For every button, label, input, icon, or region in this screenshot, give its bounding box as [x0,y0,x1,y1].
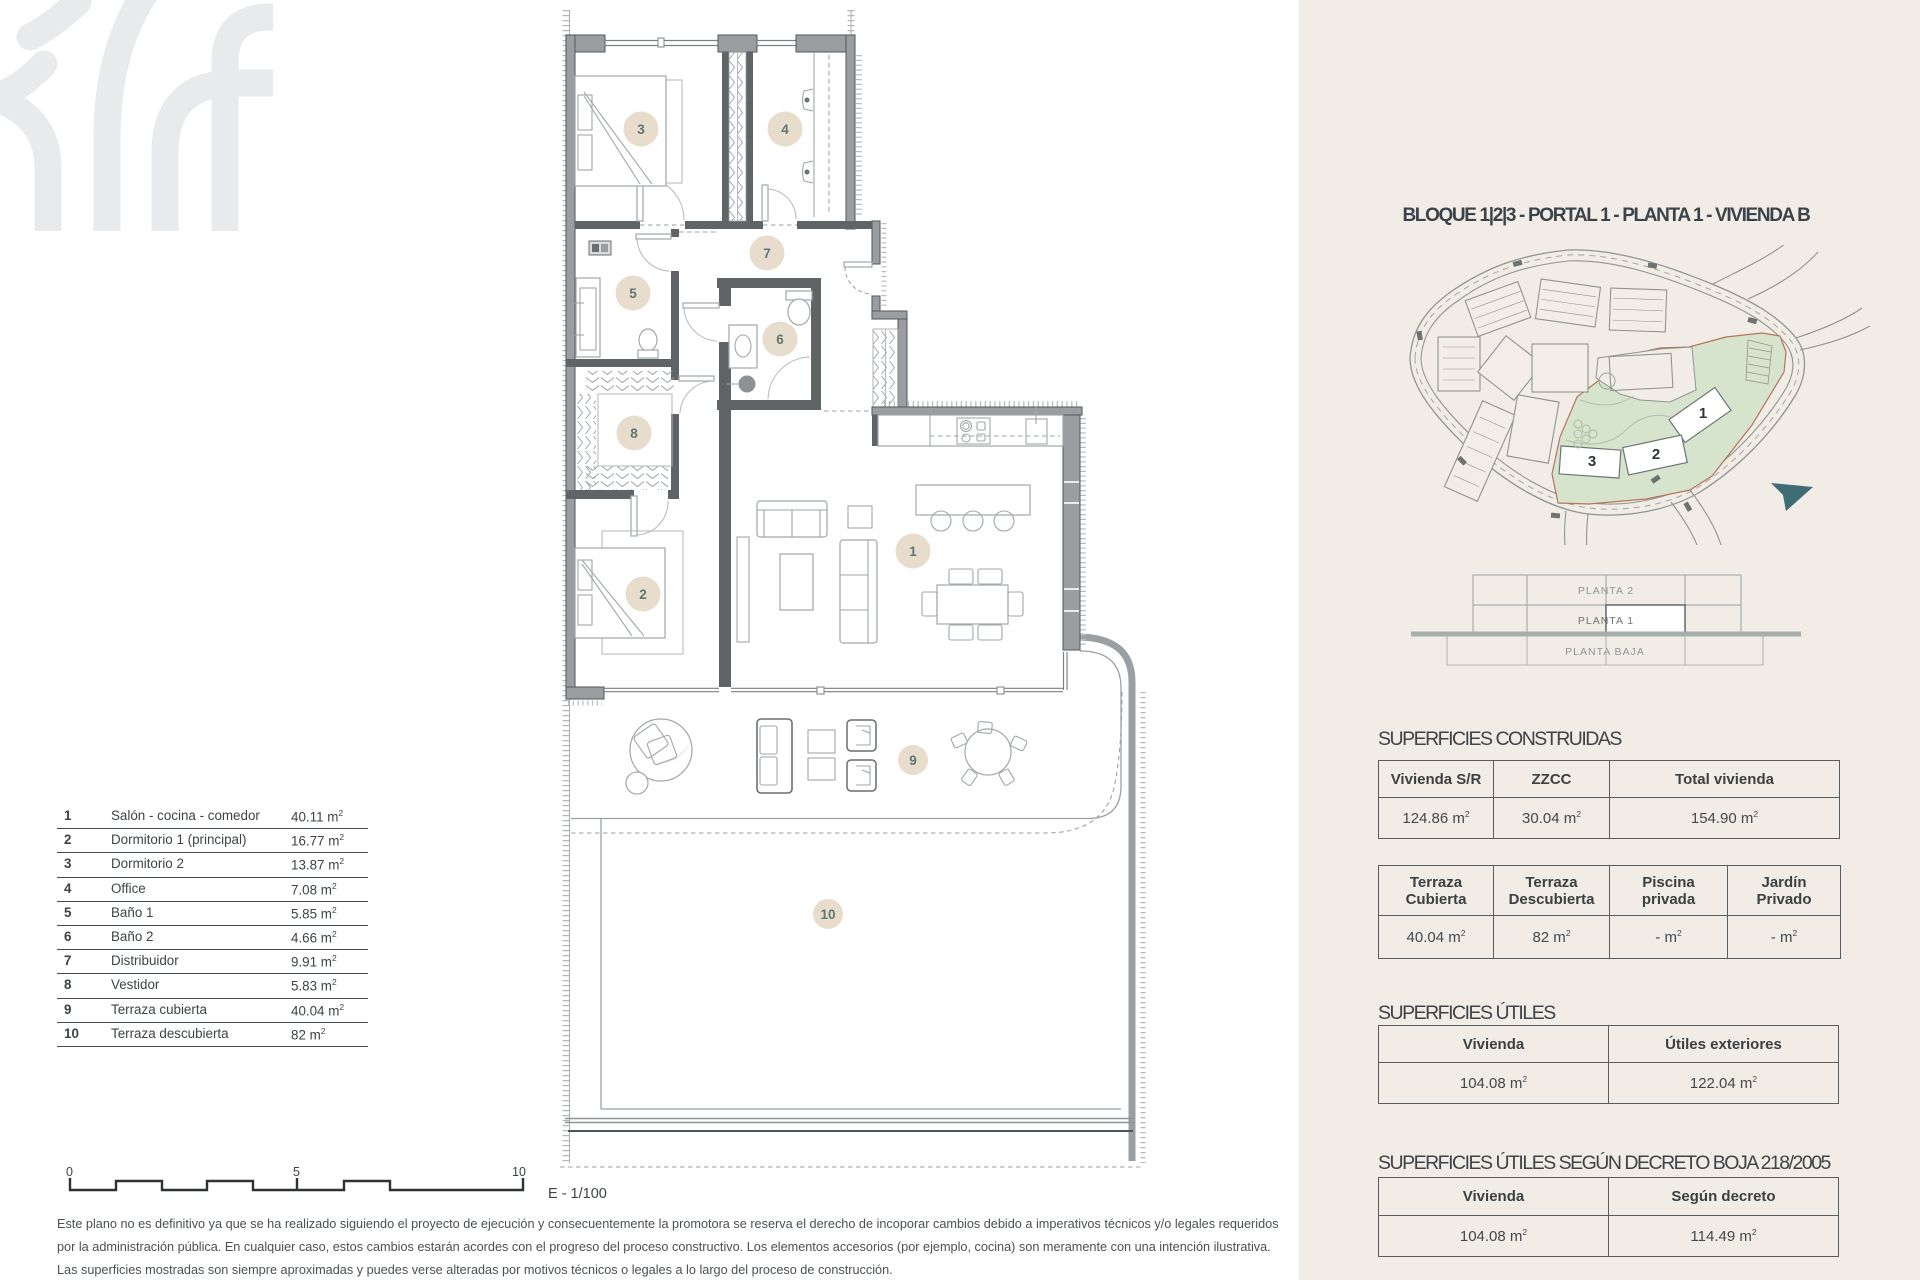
svg-text:4: 4 [781,122,789,137]
svg-text:3: 3 [637,122,645,137]
svg-text:1: 1 [1699,405,1707,422]
svg-text:PLANTA BAJA: PLANTA BAJA [1565,646,1645,658]
svg-text:9: 9 [909,753,917,768]
svg-text:3: 3 [1588,453,1596,470]
svg-text:7: 7 [763,246,771,261]
svg-text:5: 5 [629,286,637,301]
svg-text:6: 6 [776,332,784,347]
svg-text:0: 0 [66,1165,73,1179]
svg-text:5: 5 [293,1165,300,1179]
svg-text:2: 2 [639,587,647,602]
svg-text:8: 8 [630,426,638,441]
svg-text:10: 10 [512,1165,526,1179]
svg-text:1: 1 [909,544,917,559]
svg-text:2: 2 [1652,446,1660,463]
svg-text:PLANTA 2: PLANTA 2 [1578,585,1634,597]
svg-text:PLANTA 1: PLANTA 1 [1578,615,1634,627]
svg-text:10: 10 [820,907,835,922]
